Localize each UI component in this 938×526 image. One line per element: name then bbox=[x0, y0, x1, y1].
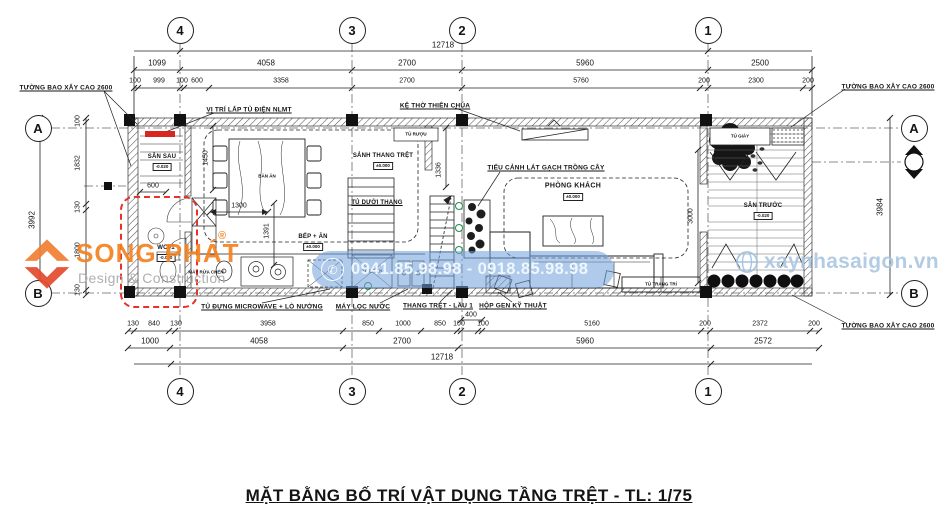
dining-table-label: BÀN ĂN bbox=[258, 174, 276, 179]
dim-bot1-13: 200 bbox=[808, 321, 820, 328]
dim-bot1-12: 2372 bbox=[752, 321, 768, 328]
room-stair-lobby: SẢNH THANG TRỆT bbox=[353, 153, 413, 159]
shoe-cabinet-label: TỦ GIÀY bbox=[731, 134, 749, 139]
dim-600: 600 bbox=[147, 183, 159, 190]
dim-top1-2: 2700 bbox=[398, 59, 416, 68]
room-san-truoc: SÂN TRƯỚC bbox=[744, 203, 783, 209]
dim-bot2-1: 4058 bbox=[250, 337, 268, 346]
dim-bot1-5: 1000 bbox=[395, 321, 411, 328]
grid-row-a-right: A bbox=[901, 115, 928, 142]
altar-note: KỆ THỜ THIÊN CHÚA bbox=[400, 103, 470, 110]
brand-subtitle: Design & Construction bbox=[78, 270, 226, 286]
dim-bot1-1: 840 bbox=[148, 321, 160, 328]
dim-top2-8: 2300 bbox=[748, 78, 764, 85]
wall-note-top-right: TƯỜNG BAO XÂY CAO 2600 bbox=[842, 84, 935, 91]
elev-san-sau: -0.020 bbox=[153, 163, 172, 171]
phone-icon: ✆ bbox=[321, 258, 344, 281]
grid-row-b-right: B bbox=[901, 280, 928, 307]
grid-col-3-top: 3 bbox=[339, 17, 366, 44]
elev-stair-lobby: ±0.000 bbox=[373, 162, 393, 170]
brand-name: SONG PHÁT bbox=[76, 238, 240, 269]
elev-san-truoc: -0.020 bbox=[754, 212, 773, 220]
dim-bot1-11: 200 bbox=[699, 321, 711, 328]
dim-top2-0: 100 bbox=[129, 78, 141, 85]
dim-top2-5: 2700 bbox=[399, 78, 415, 85]
room-san-sau: SÂN SAU bbox=[148, 154, 176, 160]
dim-bot1-8: 400 bbox=[465, 312, 477, 319]
solar-cabinet-note: VỊ TRÍ LẮP TỦ ĐIỆN NLMT bbox=[206, 107, 291, 114]
dim-left-2: 130 bbox=[75, 201, 82, 213]
globe-icon bbox=[735, 250, 759, 274]
microwave-note: TỦ ĐỰNG MICROWAVE + LÒ NƯỚNG bbox=[201, 304, 323, 311]
dim-bot1-10: 5160 bbox=[584, 321, 600, 328]
duct-note: HỘP GEN KỸ THUẬT bbox=[479, 303, 547, 310]
dim-bot1-3: 3958 bbox=[260, 321, 276, 328]
dim-top2-1: 999 bbox=[153, 78, 165, 85]
grid-col-1-bottom: 1 bbox=[695, 378, 722, 405]
dim-bot1-9: 100 bbox=[477, 321, 489, 328]
stair-note: THANG TRỆT - LẦU 1 bbox=[403, 303, 473, 310]
grid-col-1-top: 1 bbox=[695, 17, 722, 44]
dim-left-0: 100 bbox=[75, 115, 82, 127]
dim-bot2-3: 5960 bbox=[576, 337, 594, 346]
phone-watermark: ✆ 0941.85.98.98 - 0918.85.98.98 bbox=[312, 251, 614, 288]
room-living: PHÒNG KHÁCH bbox=[545, 183, 601, 190]
drawing-title: MẶT BẰNG BỐ TRÍ VẬT DỤNG TẦNG TRỆT - TL:… bbox=[0, 486, 938, 506]
dim-top1-1: 4058 bbox=[257, 59, 275, 68]
registered-icon: ® bbox=[218, 230, 226, 242]
floor-plan-drawing: 12718 1099 4058 2700 5960 2500 100 999 1… bbox=[0, 0, 938, 526]
dim-1300: 1300 bbox=[231, 203, 247, 210]
dim-bot2-0: 1000 bbox=[141, 337, 159, 346]
dim-1336: 1336 bbox=[436, 162, 443, 178]
dim-1391: 1391 bbox=[264, 223, 271, 239]
dim-top1-3: 5960 bbox=[576, 59, 594, 68]
website-watermark: xaynhasaigon.vn bbox=[735, 250, 938, 274]
dim-left-1: 1832 bbox=[75, 155, 82, 171]
room-kitchen: BẾP + ĂN bbox=[298, 234, 327, 240]
phone-numbers: 0941.85.98.98 - 0918.85.98.98 bbox=[351, 260, 588, 279]
dim-top2-7: 200 bbox=[698, 78, 710, 85]
dim-bot1-6: 850 bbox=[434, 321, 446, 328]
dim-bot1-4: 850 bbox=[362, 321, 374, 328]
elev-living: ±0.000 bbox=[563, 193, 583, 201]
wall-note-bottom-right: TƯỜNG BAO XÂY CAO 2600 bbox=[842, 323, 935, 330]
dim-3000: 3000 bbox=[688, 208, 695, 224]
under-stair-label: TỦ DƯỚI THANG bbox=[351, 200, 402, 206]
dim-top1-0: 1099 bbox=[148, 59, 166, 68]
dim-bot1-7: 100 bbox=[453, 321, 465, 328]
dim-top-total: 12718 bbox=[432, 41, 454, 50]
grid-col-2-bottom: 2 bbox=[449, 378, 476, 405]
dim-bot1-0: 130 bbox=[127, 321, 139, 328]
dim-top1-4: 2500 bbox=[751, 59, 769, 68]
grid-row-a-left: A bbox=[25, 115, 52, 142]
dim-right-total: 3984 bbox=[876, 198, 885, 216]
planter bbox=[464, 200, 490, 258]
dim-top2-9: 200 bbox=[802, 78, 814, 85]
water-filter-note: MÁY LỌC NƯỚC bbox=[336, 304, 390, 311]
section-marker bbox=[905, 145, 923, 179]
dim-bot-total: 12718 bbox=[431, 353, 453, 362]
grid-col-2-top: 2 bbox=[449, 17, 476, 44]
dim-top2-6: 5760 bbox=[573, 78, 589, 85]
elev-kitchen: ±0.000 bbox=[303, 243, 323, 251]
wine-cabinet-label: TỦ RƯỢU bbox=[405, 132, 426, 137]
dim-1450: 1450 bbox=[203, 150, 210, 166]
dim-bot2-2: 2700 bbox=[393, 337, 411, 346]
dim-bot2-4: 2572 bbox=[754, 337, 772, 346]
dim-top2-3: 600 bbox=[191, 78, 203, 85]
grid-col-4-top: 4 bbox=[167, 17, 194, 44]
deco-cabinet-label: TỦ TRANG TRÍ bbox=[645, 282, 677, 287]
grid-col-4-bottom: 4 bbox=[167, 378, 194, 405]
brand-logo-icon bbox=[20, 228, 74, 300]
dim-top2-2: 100 bbox=[176, 78, 188, 85]
solar-cabinet-marker bbox=[145, 131, 175, 137]
planter-note: TIỂU CẢNH LÁT GẠCH TRỒNG CÂY bbox=[487, 165, 604, 172]
grid-col-3-bottom: 3 bbox=[339, 378, 366, 405]
dim-bot1-2: 130 bbox=[170, 321, 182, 328]
wall-note-top-left: TƯỜNG BAO XÂY CAO 2600 bbox=[20, 85, 113, 92]
brand-watermark: SONG PHÁT ® Design & Construction bbox=[20, 226, 260, 304]
website-text: xaynhasaigon.vn bbox=[764, 250, 938, 274]
dim-top2-4: 3358 bbox=[273, 78, 289, 85]
